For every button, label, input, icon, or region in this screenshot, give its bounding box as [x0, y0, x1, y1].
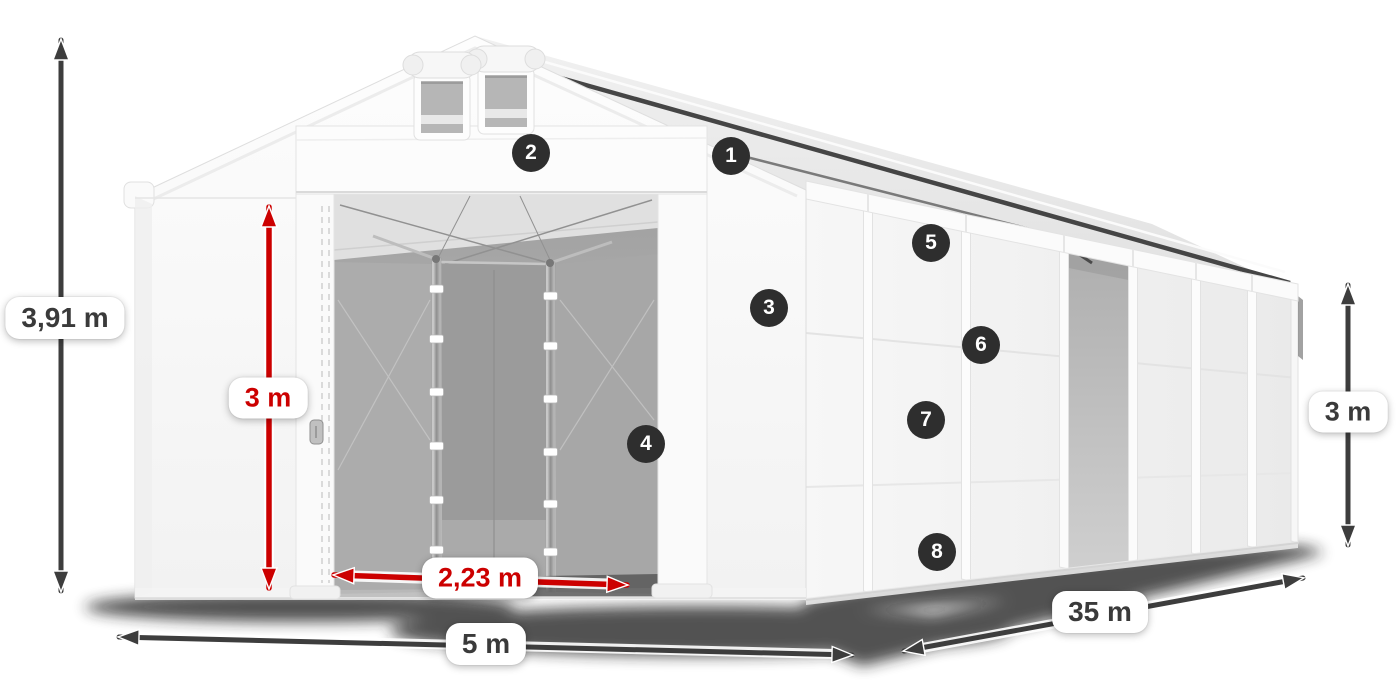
feature-badge-4: 4	[627, 425, 665, 463]
length-label: 35 m	[1052, 591, 1148, 633]
feature-badge-2: 2	[512, 134, 550, 172]
side-door-opening	[1069, 245, 1129, 569]
feature-badge-8: 8	[918, 533, 956, 571]
feature-badge-1: 1	[712, 137, 750, 175]
feature-badge-3: 3	[750, 289, 788, 327]
door-handle	[310, 420, 323, 444]
inner-height-label: 3 m	[229, 378, 308, 419]
feature-badge-7: 7	[907, 401, 945, 439]
front-door-opening	[334, 194, 658, 597]
tent-dimension-diagram: 3,91 m 3 m 2,23 m 5 m 35 m 3 m 1 2 3 4 5…	[0, 0, 1400, 700]
feature-badge-5: 5	[912, 224, 950, 262]
side-wall	[806, 181, 1303, 605]
total-height-label: 3,91 m	[5, 297, 124, 339]
front-width-label: 5 m	[446, 623, 526, 665]
side-height-label: 3 m	[1309, 392, 1388, 433]
tent-illustration	[0, 0, 1400, 700]
door-width-label: 2,23 m	[422, 558, 538, 599]
feature-badge-6: 6	[962, 326, 1000, 364]
